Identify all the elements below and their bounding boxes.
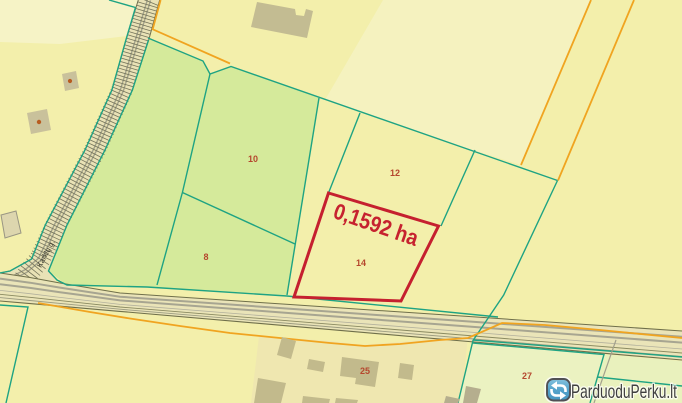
- svg-text:14: 14: [356, 258, 366, 268]
- svg-text:8: 8: [203, 252, 208, 262]
- svg-text:27: 27: [522, 371, 532, 381]
- svg-text:10: 10: [248, 154, 258, 164]
- svg-text:25: 25: [360, 366, 370, 376]
- svg-text:ParduoduPerku.lt: ParduoduPerku.lt: [571, 381, 677, 403]
- svg-text:12: 12: [390, 168, 400, 178]
